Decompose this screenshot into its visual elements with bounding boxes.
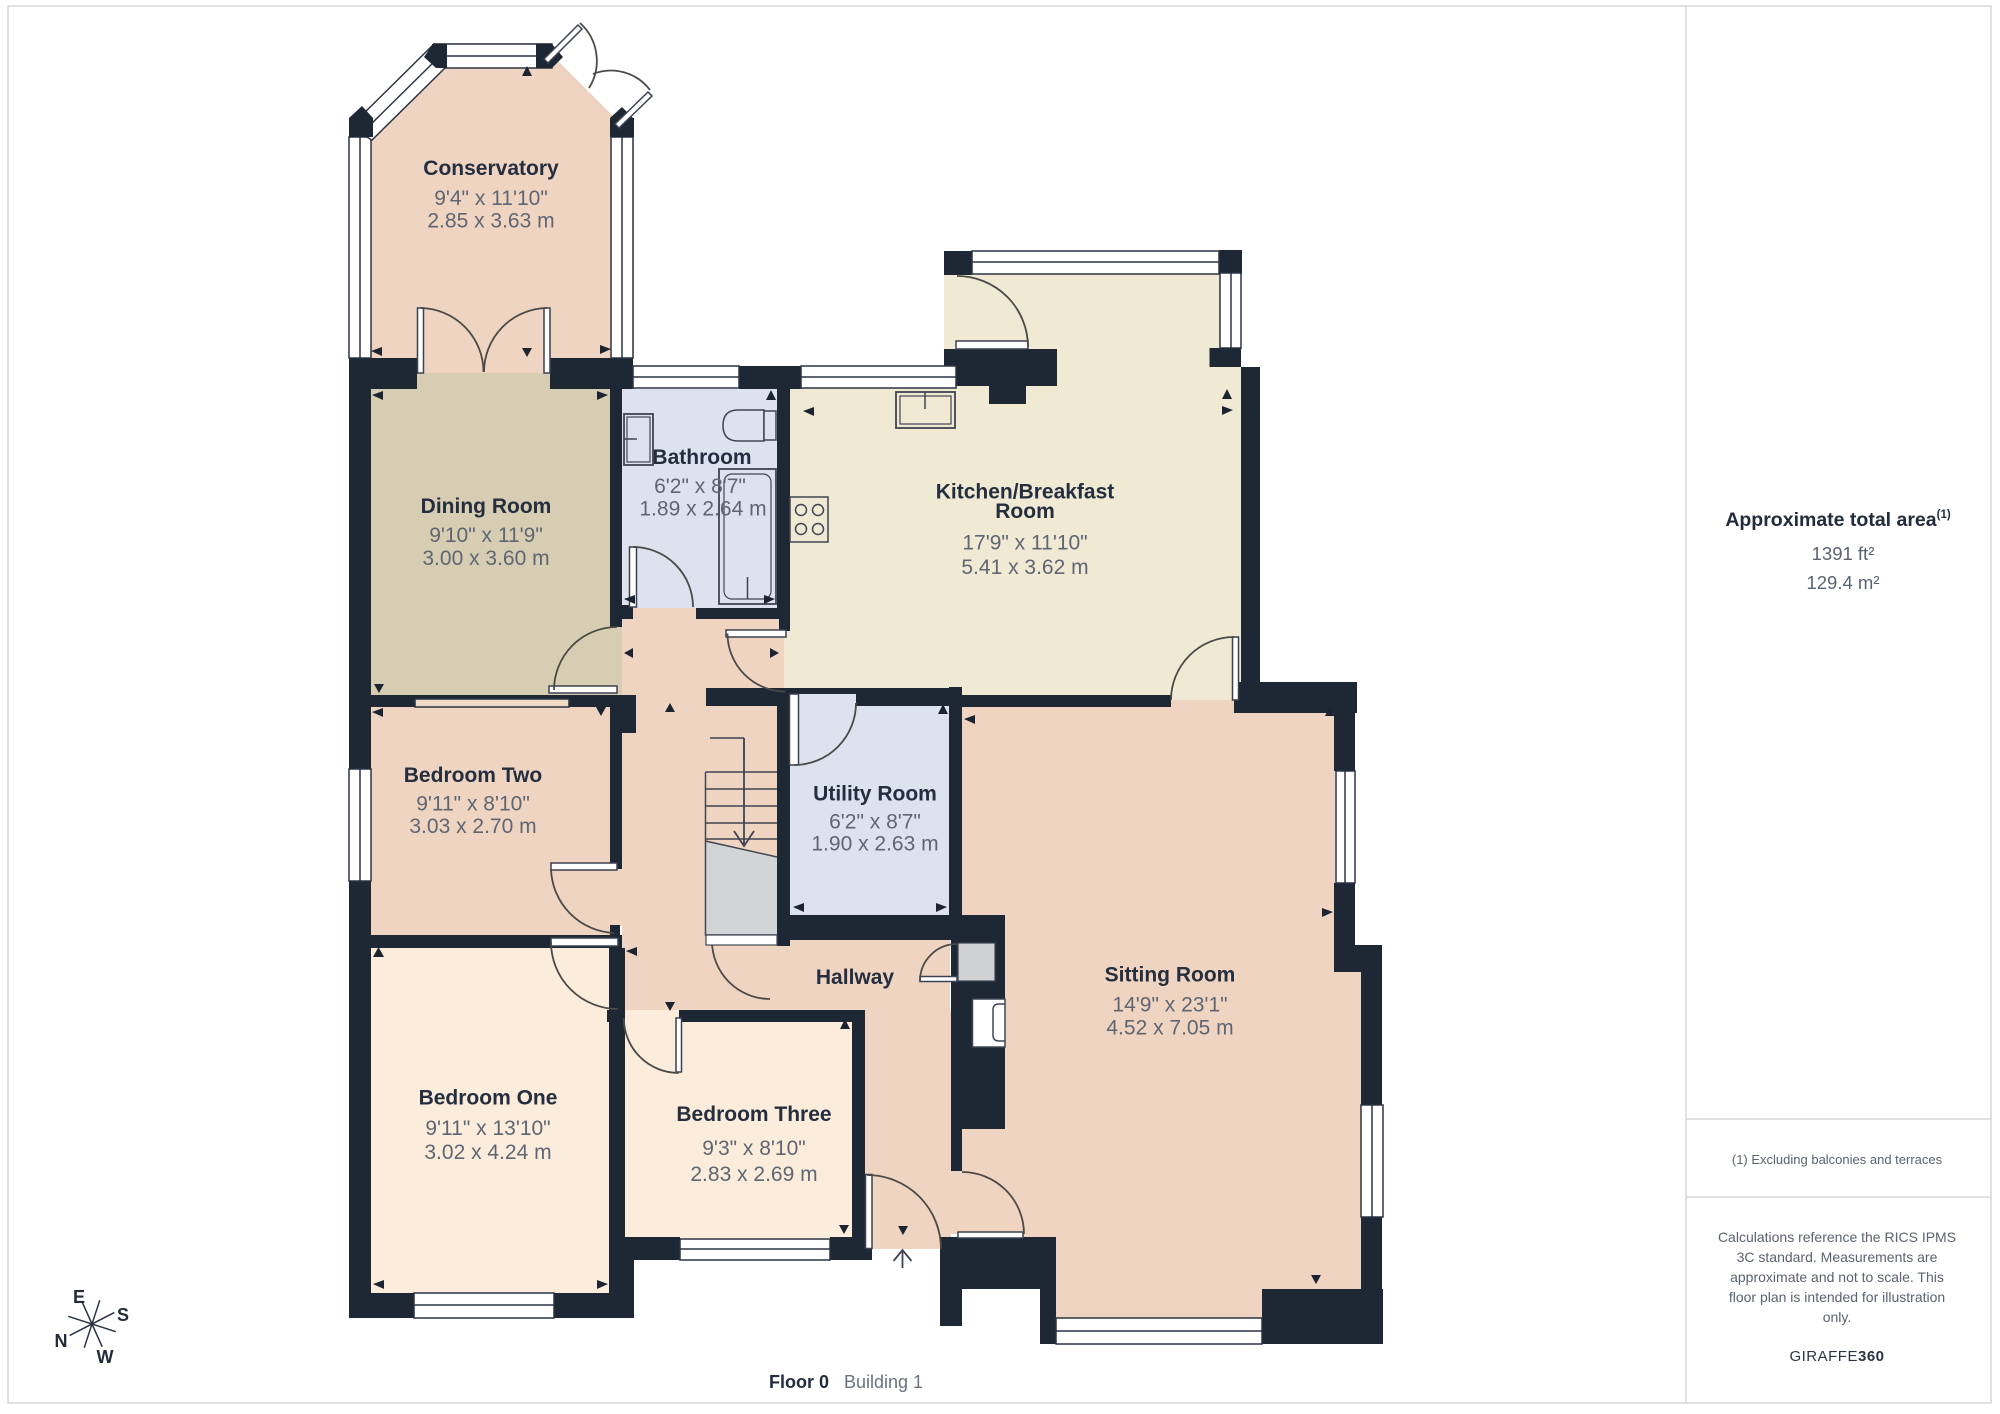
svg-text:W: W bbox=[97, 1347, 114, 1367]
svg-text:floor plan is intended for ill: floor plan is intended for illustration bbox=[1729, 1289, 1945, 1305]
svg-text:Utility Room: Utility Room bbox=[813, 783, 937, 806]
svg-text:only.: only. bbox=[1823, 1309, 1852, 1325]
svg-text:1.90 x 2.63 m: 1.90 x 2.63 m bbox=[811, 833, 938, 856]
svg-text:129.4 m²: 129.4 m² bbox=[1806, 572, 1879, 593]
svg-text:3.00 x 3.60 m: 3.00 x 3.60 m bbox=[422, 547, 549, 570]
svg-text:5.41 x 3.62 m: 5.41 x 3.62 m bbox=[961, 556, 1088, 579]
svg-text:9'10" x 11'9": 9'10" x 11'9" bbox=[429, 524, 543, 547]
svg-text:3.03 x 2.70 m: 3.03 x 2.70 m bbox=[409, 815, 536, 838]
svg-text:9'11" x 13'10": 9'11" x 13'10" bbox=[425, 1117, 550, 1140]
svg-text:9'3" x 8'10": 9'3" x 8'10" bbox=[702, 1137, 806, 1160]
svg-text:17'9" x 11'10": 17'9" x 11'10" bbox=[962, 532, 1087, 555]
svg-text:Floor 0: Floor 0 bbox=[769, 1372, 829, 1392]
svg-text:Calculations reference the RIC: Calculations reference the RICS IPMS bbox=[1718, 1229, 1956, 1245]
svg-text:6'2" x 8'7": 6'2" x 8'7" bbox=[654, 475, 746, 498]
svg-text:Bedroom One: Bedroom One bbox=[419, 1087, 558, 1110]
svg-text:9'11" x 8'10": 9'11" x 8'10" bbox=[416, 793, 530, 816]
svg-text:2.85 x 3.63 m: 2.85 x 3.63 m bbox=[427, 210, 554, 233]
svg-text:GIRAFFE360: GIRAFFE360 bbox=[1789, 1348, 1884, 1365]
svg-text:Dining Room: Dining Room bbox=[421, 495, 552, 518]
svg-text:1.89 x 2.64 m: 1.89 x 2.64 m bbox=[639, 498, 766, 521]
svg-text:Room: Room bbox=[995, 500, 1055, 523]
svg-text:9'4" x 11'10": 9'4" x 11'10" bbox=[434, 187, 548, 210]
svg-text:E: E bbox=[73, 1287, 85, 1307]
svg-text:S: S bbox=[117, 1305, 129, 1325]
svg-text:Hallway: Hallway bbox=[816, 966, 895, 989]
svg-text:(1) Excluding balconies and te: (1) Excluding balconies and terraces bbox=[1732, 1152, 1943, 1167]
svg-text:N: N bbox=[55, 1331, 68, 1351]
svg-text:Approximate total area(1): Approximate total area(1) bbox=[1725, 509, 1951, 531]
svg-text:Conservatory: Conservatory bbox=[423, 157, 559, 180]
svg-text:4.52 x 7.05 m: 4.52 x 7.05 m bbox=[1106, 1017, 1233, 1040]
svg-text:6'2" x 8'7": 6'2" x 8'7" bbox=[829, 811, 921, 834]
svg-text:3.02 x 4.24 m: 3.02 x 4.24 m bbox=[424, 1141, 551, 1164]
svg-text:2.83 x 2.69 m: 2.83 x 2.69 m bbox=[690, 1163, 817, 1186]
svg-text:Bedroom Two: Bedroom Two bbox=[404, 764, 542, 787]
svg-text:Sitting Room: Sitting Room bbox=[1105, 964, 1236, 987]
svg-text:Building 1: Building 1 bbox=[844, 1372, 923, 1392]
svg-text:approximate and not to scale.: approximate and not to scale. This bbox=[1730, 1269, 1944, 1285]
svg-text:Bathroom: Bathroom bbox=[652, 446, 751, 469]
svg-text:3C standard. Measurements are: 3C standard. Measurements are bbox=[1737, 1249, 1938, 1265]
svg-text:14'9" x 23'1": 14'9" x 23'1" bbox=[1112, 994, 1227, 1017]
svg-text:1391 ft²: 1391 ft² bbox=[1812, 543, 1875, 564]
svg-text:Bedroom Three: Bedroom Three bbox=[676, 1103, 831, 1126]
